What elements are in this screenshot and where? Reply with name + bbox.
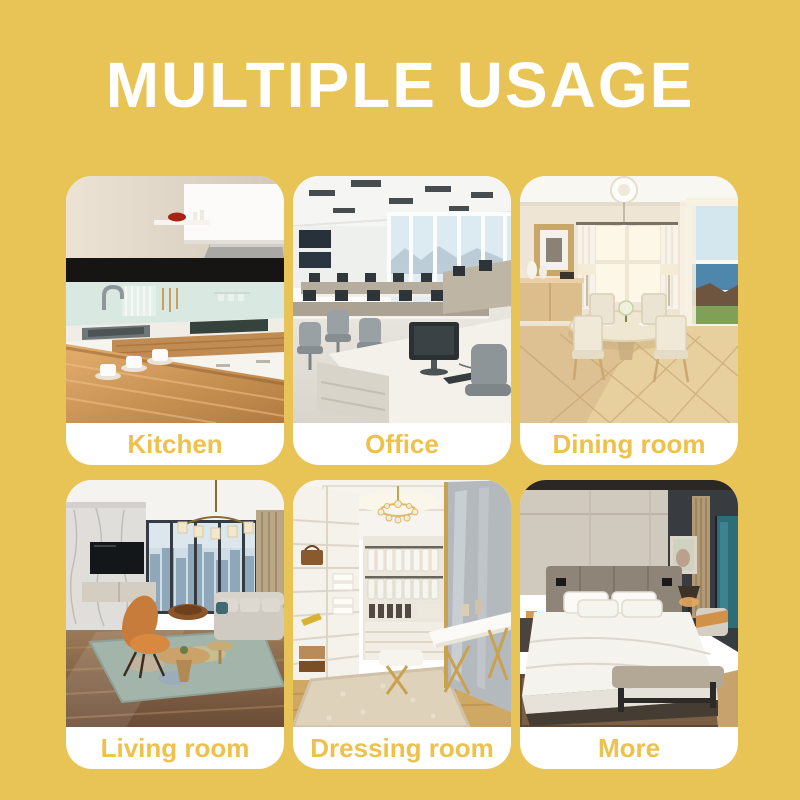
promo-poster: MULTIPLE USAGE bbox=[0, 0, 800, 800]
card-dining-room: Dining room bbox=[520, 176, 738, 465]
card-dressing-room: Dressing room bbox=[293, 480, 511, 769]
card-grid: Kitchen bbox=[66, 176, 738, 769]
living-room-photo-illustration bbox=[66, 480, 284, 727]
office-photo-illustration bbox=[293, 176, 511, 423]
kitchen-photo-illustration bbox=[66, 176, 284, 423]
bedroom-photo-illustration bbox=[520, 480, 738, 727]
card-label-more: More bbox=[520, 727, 738, 769]
kitchen-photo bbox=[66, 176, 284, 423]
card-office: Office bbox=[293, 176, 511, 465]
page-title: MULTIPLE USAGE bbox=[0, 48, 800, 122]
card-label-living-room: Living room bbox=[66, 727, 284, 769]
office-photo bbox=[293, 176, 511, 423]
dressing-room-photo bbox=[293, 480, 511, 727]
card-kitchen: Kitchen bbox=[66, 176, 284, 465]
dressing-room-photo-illustration bbox=[293, 480, 511, 727]
card-label-dining-room: Dining room bbox=[520, 423, 738, 465]
bedroom-photo bbox=[520, 480, 738, 727]
card-label-dressing-room: Dressing room bbox=[293, 727, 511, 769]
living-room-photo bbox=[66, 480, 284, 727]
card-label-kitchen: Kitchen bbox=[66, 423, 284, 465]
card-living-room: Living room bbox=[66, 480, 284, 769]
dining-room-photo-illustration bbox=[520, 176, 738, 423]
card-label-office: Office bbox=[293, 423, 511, 465]
dining-room-photo bbox=[520, 176, 738, 423]
card-more: More bbox=[520, 480, 738, 769]
